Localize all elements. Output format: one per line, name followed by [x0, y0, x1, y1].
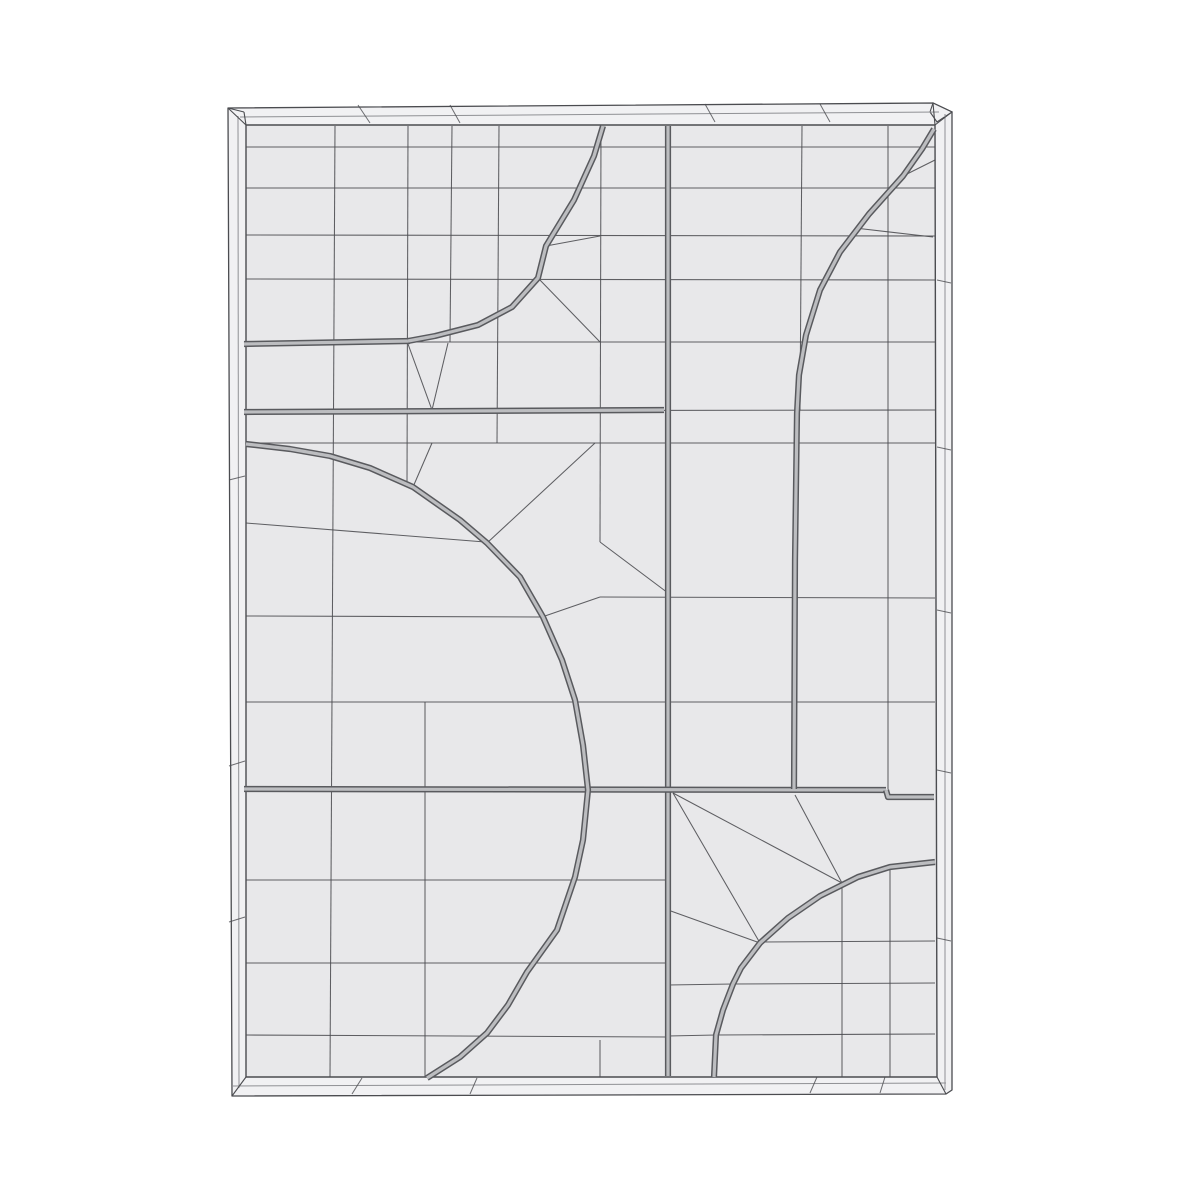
wireframe-render-stage	[0, 0, 1200, 1200]
panel-wireframe-svg	[0, 0, 1200, 1200]
